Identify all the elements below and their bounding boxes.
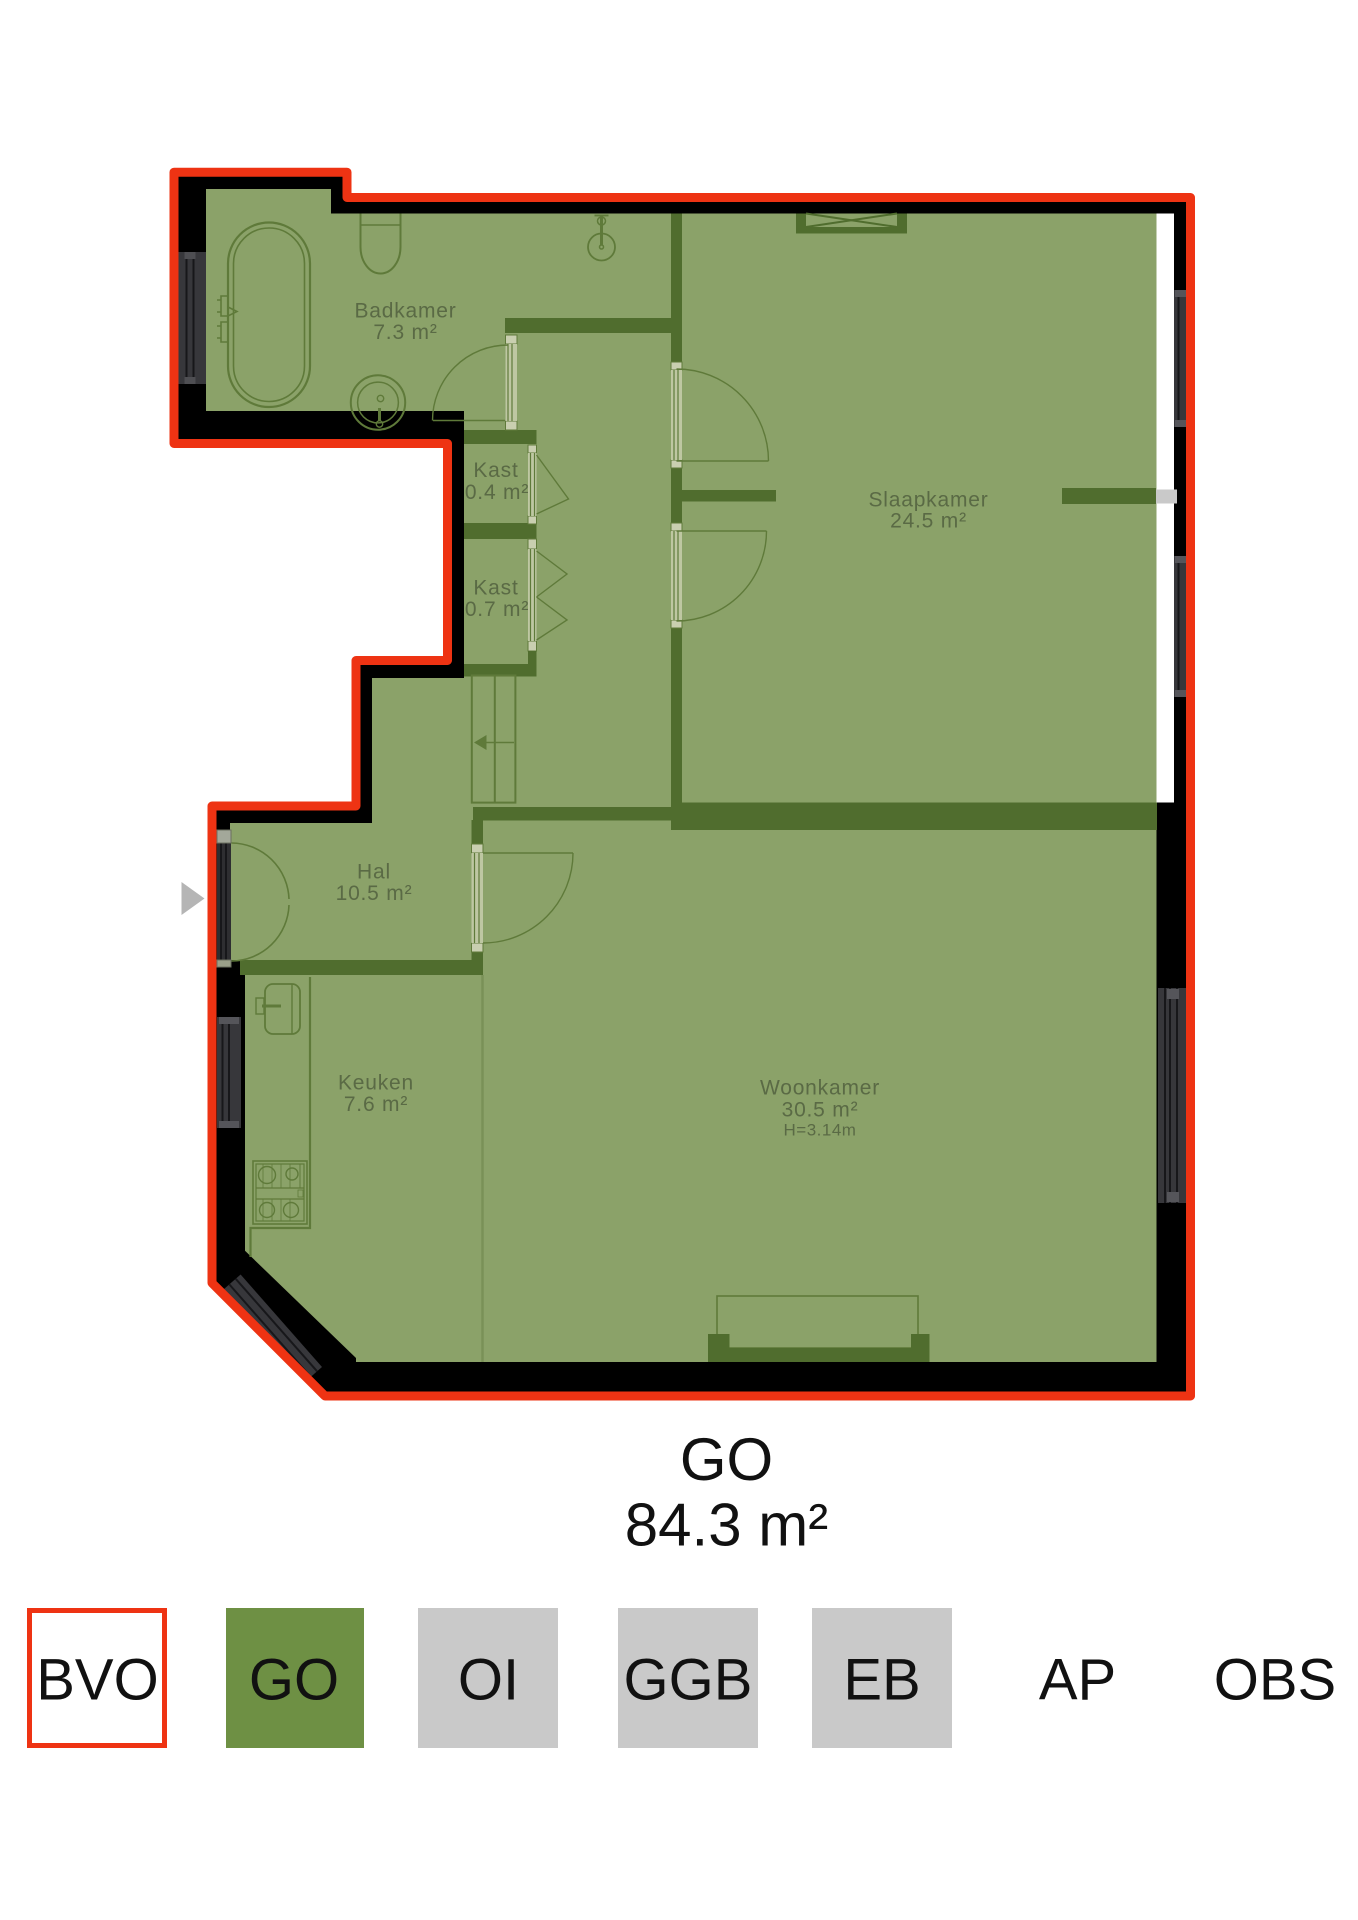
svg-text:GGB: GGB — [624, 1648, 753, 1713]
svg-text:AP: AP — [1039, 1648, 1116, 1713]
svg-text:10.5 m²: 10.5 m² — [336, 882, 413, 905]
svg-text:EB: EB — [843, 1648, 920, 1713]
svg-text:H=3.14m: H=3.14m — [784, 1121, 857, 1140]
svg-text:Woonkamer: Woonkamer — [760, 1077, 880, 1100]
svg-text:OI: OI — [458, 1648, 519, 1713]
svg-text:Badkamer: Badkamer — [354, 300, 456, 323]
svg-text:GO: GO — [680, 1426, 773, 1493]
svg-text:OBS: OBS — [1214, 1648, 1337, 1713]
svg-text:Kast: Kast — [473, 459, 518, 482]
svg-text:7.3 m²: 7.3 m² — [373, 321, 437, 344]
svg-text:0.7 m²: 0.7 m² — [465, 598, 529, 621]
svg-text:BVO: BVO — [36, 1648, 159, 1713]
svg-text:24.5 m²: 24.5 m² — [890, 510, 967, 533]
svg-text:Hal: Hal — [357, 861, 391, 884]
svg-text:0.4 m²: 0.4 m² — [465, 481, 529, 504]
svg-text:30.5 m²: 30.5 m² — [782, 1099, 859, 1122]
svg-text:Keuken: Keuken — [338, 1072, 414, 1095]
svg-text:7.6 m²: 7.6 m² — [344, 1093, 408, 1116]
svg-text:Kast: Kast — [473, 577, 518, 600]
svg-text:GO: GO — [249, 1648, 339, 1713]
svg-text:84.3 m²: 84.3 m² — [625, 1492, 828, 1559]
svg-text:Slaapkamer: Slaapkamer — [868, 489, 988, 512]
